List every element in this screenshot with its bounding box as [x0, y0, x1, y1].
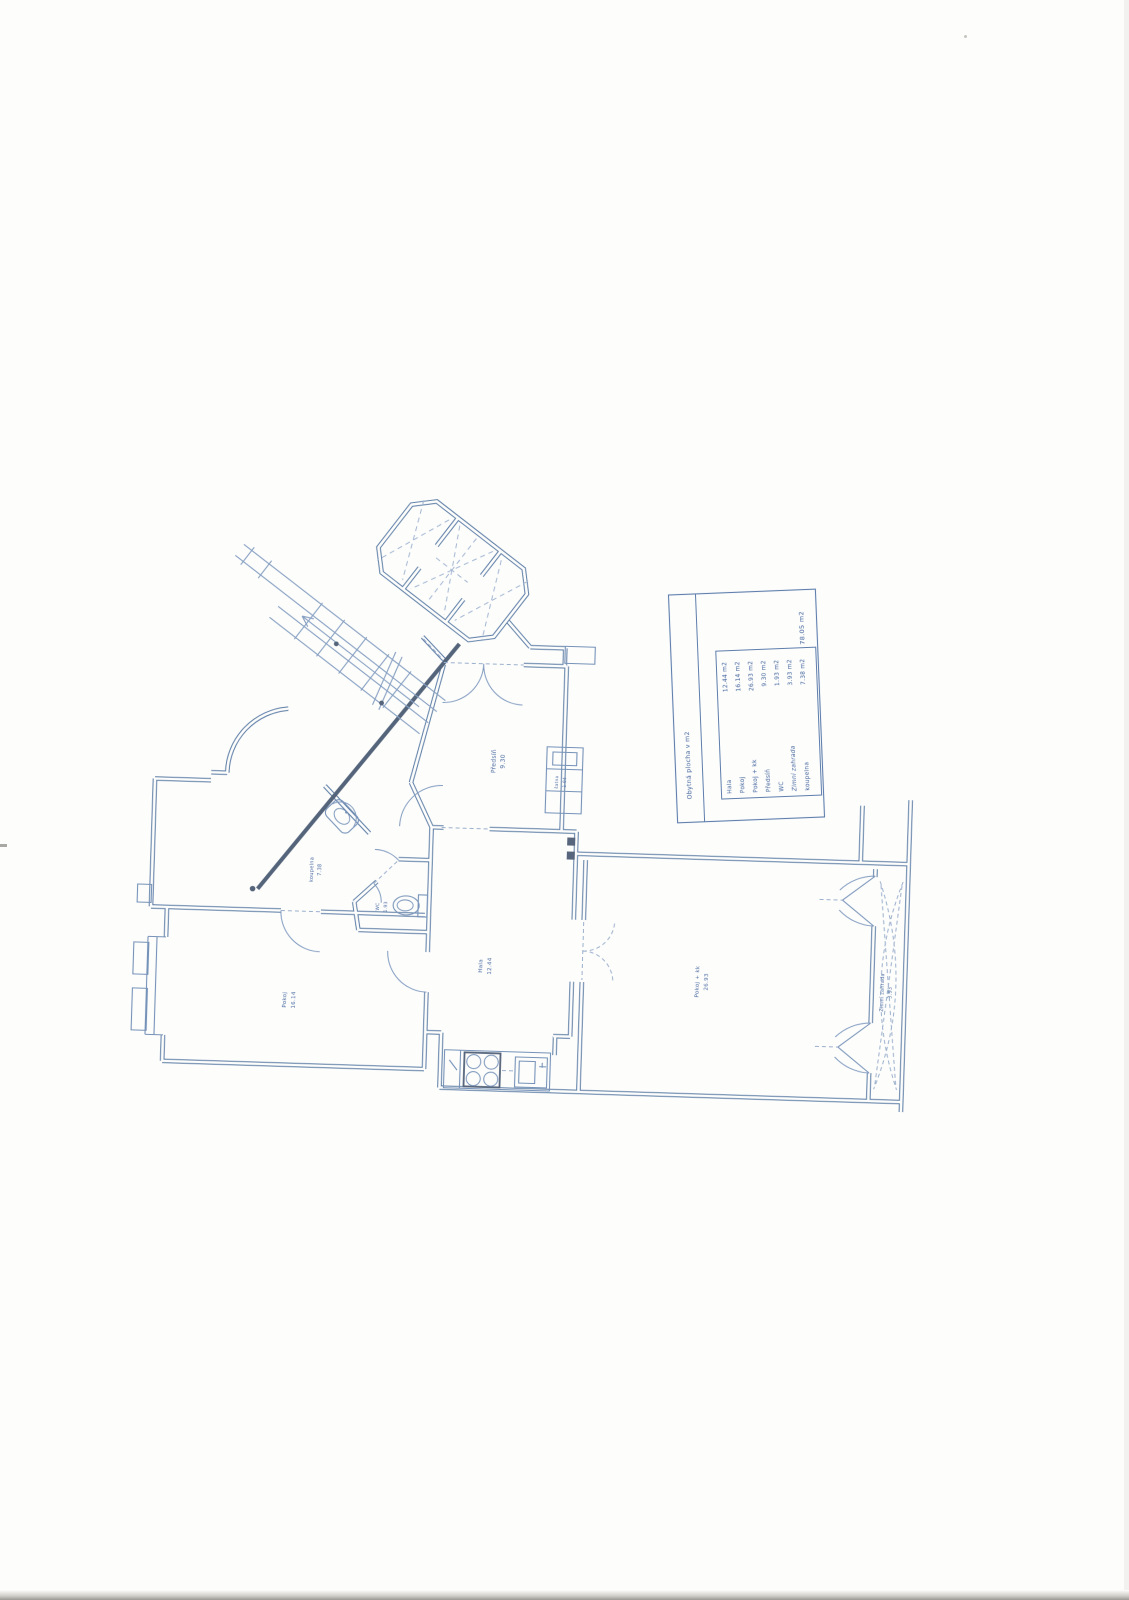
- floor-plan-drawing: Předsíň 9.30 šatna 1.04 koupelna 7.38 WC…: [0, 0, 1129, 1600]
- room-label-satna: šatna: [554, 775, 559, 788]
- legend-table: Obytná plocha v m2 78.05 m2 Hala 12.44 m…: [668, 589, 824, 823]
- legend-total: 78.05 m2: [797, 611, 806, 645]
- legend-row-area: 12.44 m2: [722, 662, 729, 692]
- legend-row-label: Předsíň: [765, 769, 773, 793]
- legend-title: Obytná plocha v m2: [683, 731, 694, 799]
- scan-edge-shadow-right: [1124, 0, 1129, 1600]
- room-area-zimni: 3.93: [887, 987, 893, 999]
- room-area-koupelna: 7.38: [317, 863, 323, 876]
- legend-row-label: Hala: [727, 779, 734, 794]
- room-label-wc: WC: [375, 902, 381, 910]
- room-label-zimni: Zimní zahrada: [878, 973, 886, 1012]
- scan-artifact-dot: [964, 35, 967, 38]
- legend-divider: [695, 594, 704, 822]
- legend-row-label: Pokoj + kk: [752, 759, 759, 793]
- scan-artifact-dash: [0, 844, 7, 847]
- room-area-pokoj: 16.14: [291, 991, 298, 1009]
- legend-row-label: Pokoj: [740, 776, 747, 793]
- door-pivot-dot: [250, 886, 256, 892]
- legend-row-area: 1.93 m2: [774, 660, 781, 686]
- room-label-predsin: Předsíň: [490, 749, 498, 773]
- room-area-hala: 12.44: [487, 957, 494, 975]
- stair-pivot-dot: [378, 700, 385, 707]
- room-label-pokoj-kk: Pokoj + kk: [694, 965, 701, 998]
- legend-row-area: 7.38 m2: [800, 659, 807, 685]
- room-label-koupelna: koupelna: [309, 857, 316, 882]
- room-area-satna: 1.04: [562, 777, 567, 788]
- apartment-plan: Předsíň 9.30 šatna 1.04 koupelna 7.38 WC…: [129, 482, 920, 1112]
- legend-row-area: 26.93 m2: [748, 661, 755, 691]
- flue-square: [567, 851, 575, 859]
- legend-rows: Hala 12.44 m2 Pokoj 16.14 m2 Pokoj + kk …: [722, 659, 811, 795]
- stove: [463, 1052, 500, 1087]
- room-area-pokoj-kk: 26.93: [704, 973, 711, 991]
- stair-pivot-dot: [333, 640, 340, 647]
- legend-row-label: Zimní zahrada: [790, 745, 799, 792]
- room-area-wc: 1.93: [383, 901, 389, 912]
- room-area-predsin: 9.30: [499, 754, 506, 769]
- scanned-floor-plan-page: Předsíň 9.30 šatna 1.04 koupelna 7.38 WC…: [0, 0, 1129, 1600]
- scan-edge-shadow-bottom: [0, 1590, 1129, 1600]
- legend-row-label: WC: [779, 781, 785, 792]
- room-label-pokoj: Pokoj: [282, 991, 289, 1007]
- legend-row-area: 9.30 m2: [761, 660, 768, 686]
- legend-row-area: 16.14 m2: [735, 661, 742, 691]
- fixtures-linework: [130, 633, 883, 1101]
- legend-row-area: 3.93 m2: [787, 659, 794, 685]
- room-label-hala: Hala: [478, 959, 484, 973]
- staircase: [214, 538, 450, 739]
- flue-square: [567, 837, 575, 845]
- legend-row-label: koupelna: [804, 761, 811, 790]
